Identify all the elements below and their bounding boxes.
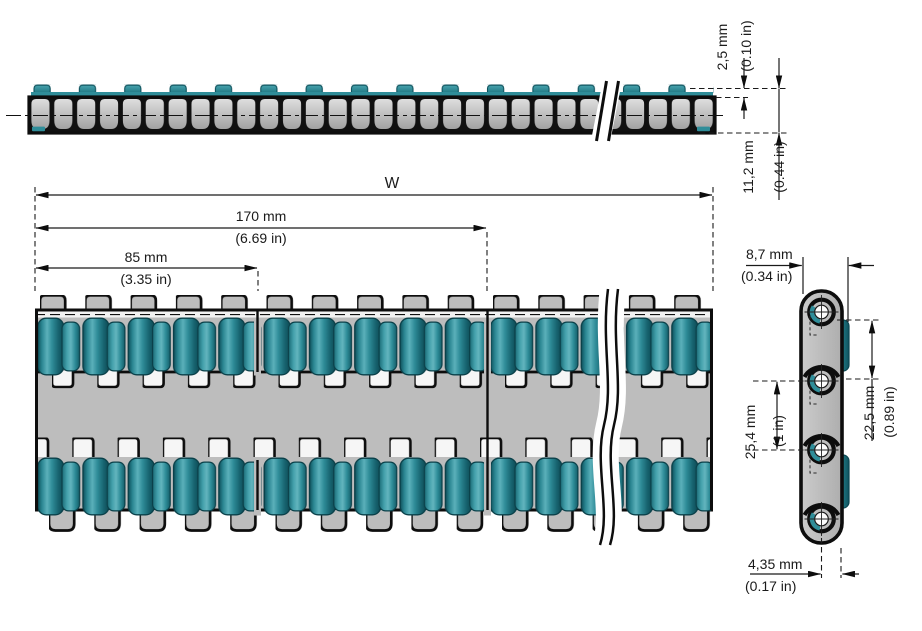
plan-break bbox=[600, 287, 618, 547]
view-plan bbox=[35, 287, 713, 547]
link-width-label-metric: 8,7 mm bbox=[746, 246, 793, 262]
dim-170mm: 170 mm (6.69 in) bbox=[36, 208, 487, 291]
dim-belt-thickness: 11,2 mm (0.44 in) bbox=[740, 58, 787, 200]
insert-protrusion-label-metric: 2,5 mm bbox=[714, 24, 730, 71]
belt-width-label: W bbox=[385, 175, 400, 192]
dim-170mm-label-metric: 170 mm bbox=[236, 208, 287, 224]
belt-thickness-label-metric: 11,2 mm bbox=[740, 140, 756, 193]
dim-170mm-label-imperial: (6.69 in) bbox=[235, 230, 286, 246]
dim-85mm-label-metric: 85 mm bbox=[125, 249, 168, 265]
dim-pin-edge-offset: 4,35 mm (0.17 in) bbox=[745, 529, 859, 594]
belt-thickness-label-imperial: (0.44 in) bbox=[771, 141, 787, 192]
technical-drawing-page: W 170 mm (6.69 in) 85 mm (3.35 in) 2,5 m… bbox=[0, 0, 922, 631]
view-elevation bbox=[6, 78, 726, 144]
pitch-label-metric: 25,4 mm bbox=[742, 405, 758, 459]
dim-85mm-label-imperial: (3.35 in) bbox=[120, 271, 171, 287]
belt-technical-drawing: W 170 mm (6.69 in) 85 mm (3.35 in) 2,5 m… bbox=[0, 0, 922, 631]
insert-protrusion-label-imperial: (0.10 in) bbox=[738, 20, 754, 71]
view-side bbox=[801, 291, 849, 543]
insert-length-label-imperial: (0.89 in) bbox=[881, 386, 897, 437]
pin-edge-offset-label-imperial: (0.17 in) bbox=[745, 578, 796, 594]
link-width-label-imperial: (0.34 in) bbox=[741, 268, 792, 284]
insert-length-label-metric: 22,5 mm bbox=[861, 386, 877, 440]
dim-85mm: 85 mm (3.35 in) bbox=[36, 249, 258, 291]
insert-corner-mark-right bbox=[697, 127, 710, 132]
insert-corner-mark-left bbox=[32, 127, 45, 132]
pin-edge-offset-label-metric: 4,35 mm bbox=[748, 556, 802, 572]
pitch-label-imperial: (1 in) bbox=[770, 415, 786, 447]
